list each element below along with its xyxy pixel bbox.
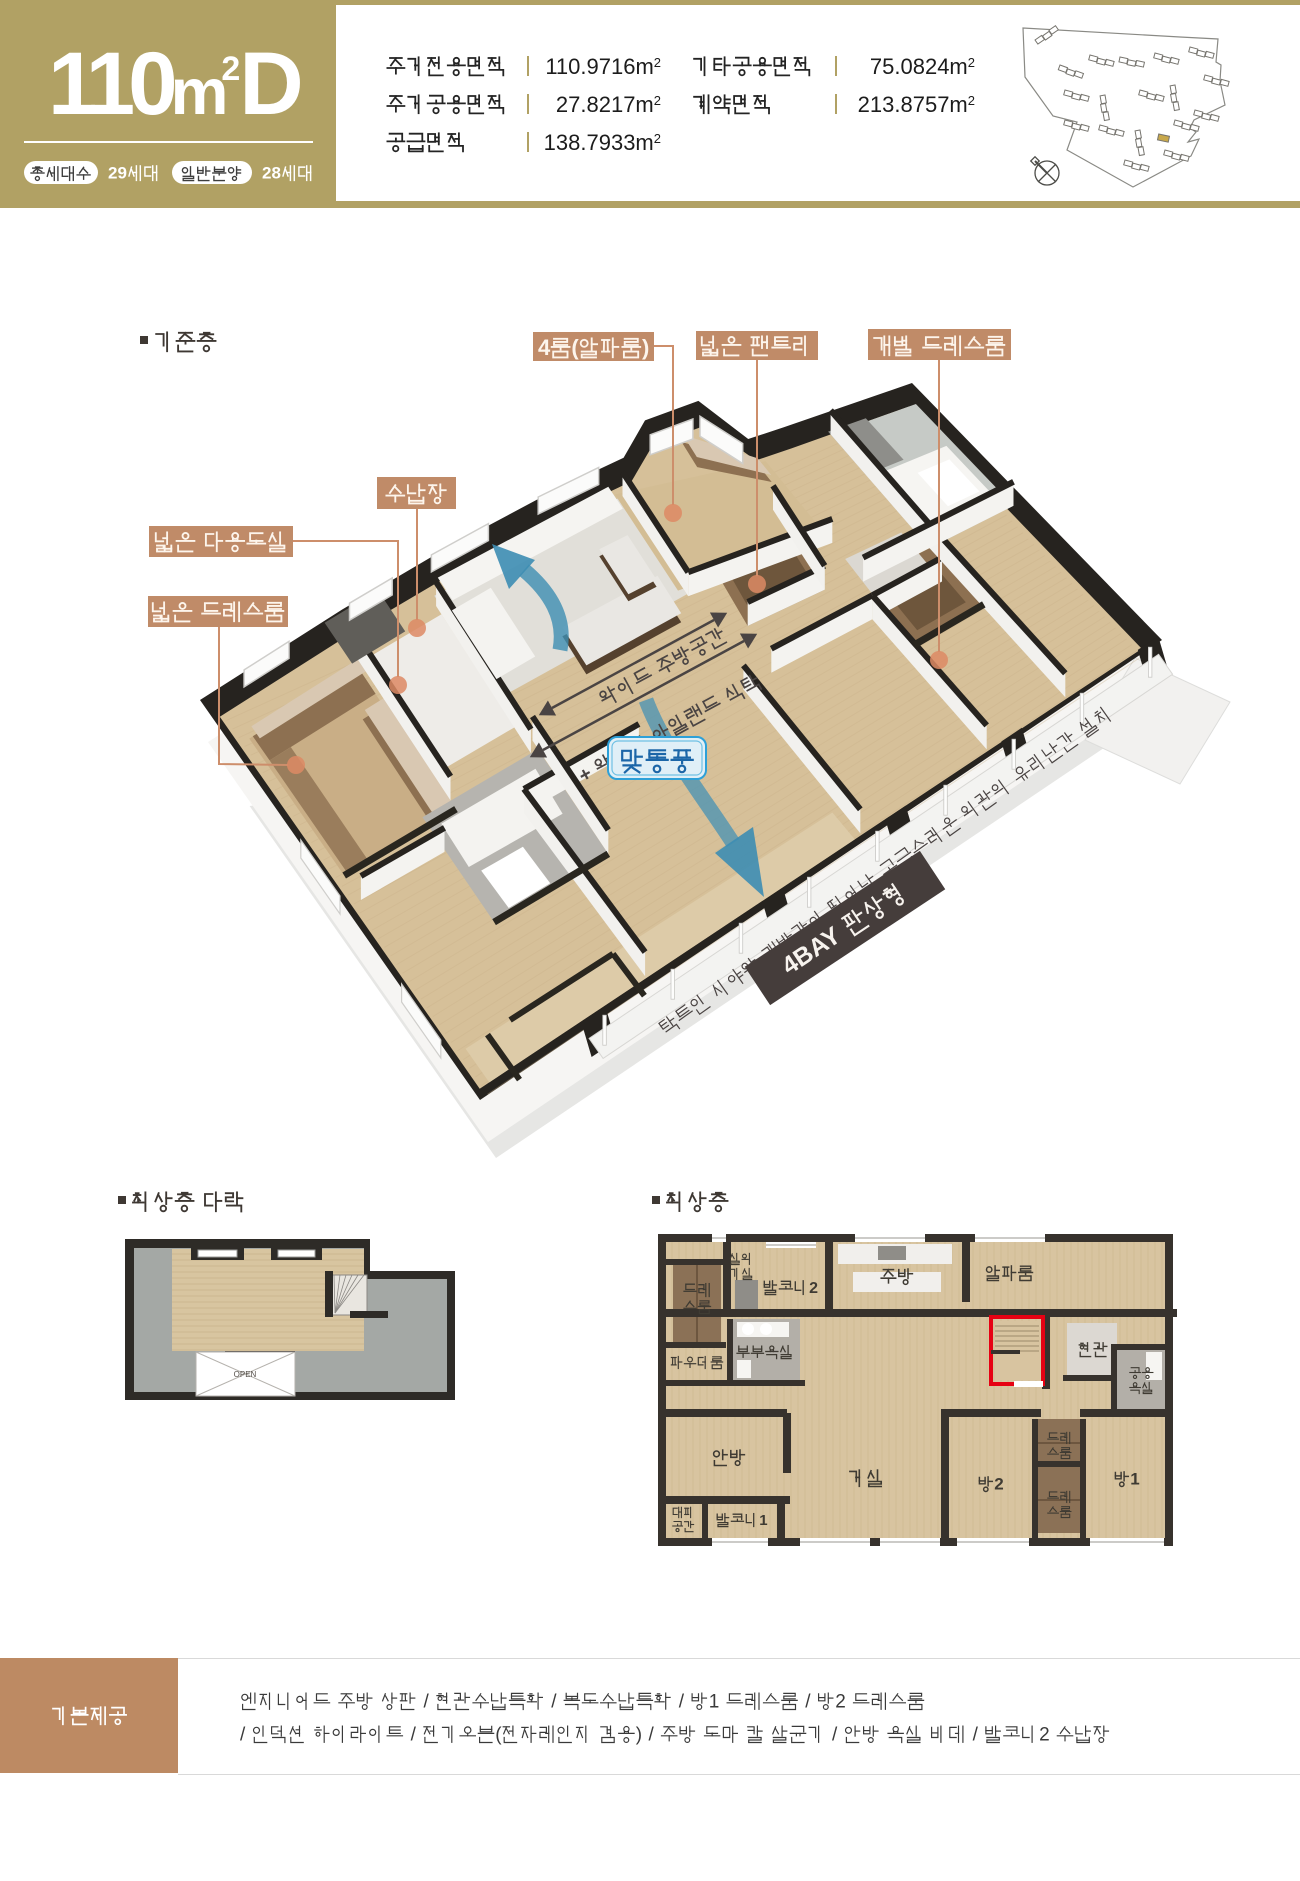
svg-text:/: / [805, 1691, 811, 1712]
svg-text:1: 1 [709, 1691, 720, 1712]
svg-text:(: ( [495, 1724, 502, 1745]
svg-text:/: / [551, 1691, 557, 1712]
svg-text:/: / [973, 1724, 979, 1745]
svg-text:/: / [679, 1691, 685, 1712]
svg-text:1: 1 [759, 1512, 767, 1529]
svg-text:/: / [411, 1724, 417, 1745]
svg-text:2: 2 [994, 1475, 1003, 1494]
svg-text:2: 2 [835, 1691, 846, 1712]
svg-text:/: / [649, 1724, 655, 1745]
svg-text:/: / [424, 1691, 430, 1712]
svg-text:2: 2 [1039, 1724, 1050, 1745]
svg-text:1: 1 [1130, 1470, 1139, 1489]
svg-text:/: / [240, 1724, 246, 1745]
svg-text:2: 2 [809, 1280, 818, 1297]
svg-text:/: / [832, 1724, 838, 1745]
svg-text:): ) [636, 1724, 642, 1745]
